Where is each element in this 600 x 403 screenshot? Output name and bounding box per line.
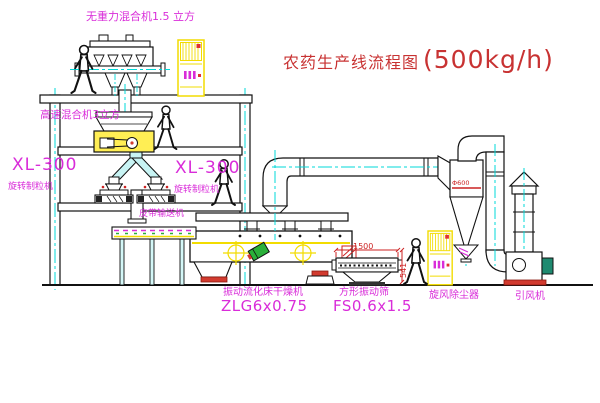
label-dryer-model: ZLG6x0.75: [221, 299, 308, 314]
label-induced-fan: 引风机: [515, 292, 545, 302]
label-zero-gravity-mixer: 无重力混合机1.5 立方: [86, 11, 195, 22]
label-high-speed-mixer: 高速混合机3立方: [40, 110, 120, 121]
exhaust-duct: [263, 156, 452, 214]
dimension-sieve-length: 1500: [353, 242, 373, 251]
label-cyclone: 旋风除尘器: [429, 291, 479, 301]
drawing-title: 农药生产线流程图 (500kg/h): [283, 47, 554, 72]
label-granulator-left-name: 旋转制粒机: [8, 183, 53, 192]
granulator-left: [95, 177, 133, 203]
person-second-floor: [155, 106, 177, 149]
dimension-sieve-height: 541: [399, 263, 408, 278]
label-granulator-right-model: XL-300: [175, 160, 240, 177]
label-granulator-left-model: XL-300: [12, 157, 77, 174]
control-cabinet-lower: [428, 231, 452, 285]
control-cabinet-upper: [178, 40, 204, 96]
title-text: 农药生产线流程图: [283, 55, 419, 71]
granulator-right: [137, 177, 175, 203]
label-granulator-right-name: 旋转制粒机: [174, 186, 219, 195]
label-belt-conveyor: 皮带输送机: [139, 210, 184, 219]
title-capacity: (500kg/h): [423, 47, 554, 72]
vibrating-sieve: [332, 246, 402, 286]
belt-conveyor: [112, 227, 196, 285]
dimension-cyclone-diameter: Φ600: [452, 179, 470, 187]
label-sieve-model: FS0.6x1.5: [333, 299, 412, 314]
induced-draft-fan: [504, 252, 553, 285]
cad-drawing-viewport: 农药生产线流程图 (500kg/h) 无重力混合机1.5 立方 高速混合机3立方…: [0, 0, 600, 403]
